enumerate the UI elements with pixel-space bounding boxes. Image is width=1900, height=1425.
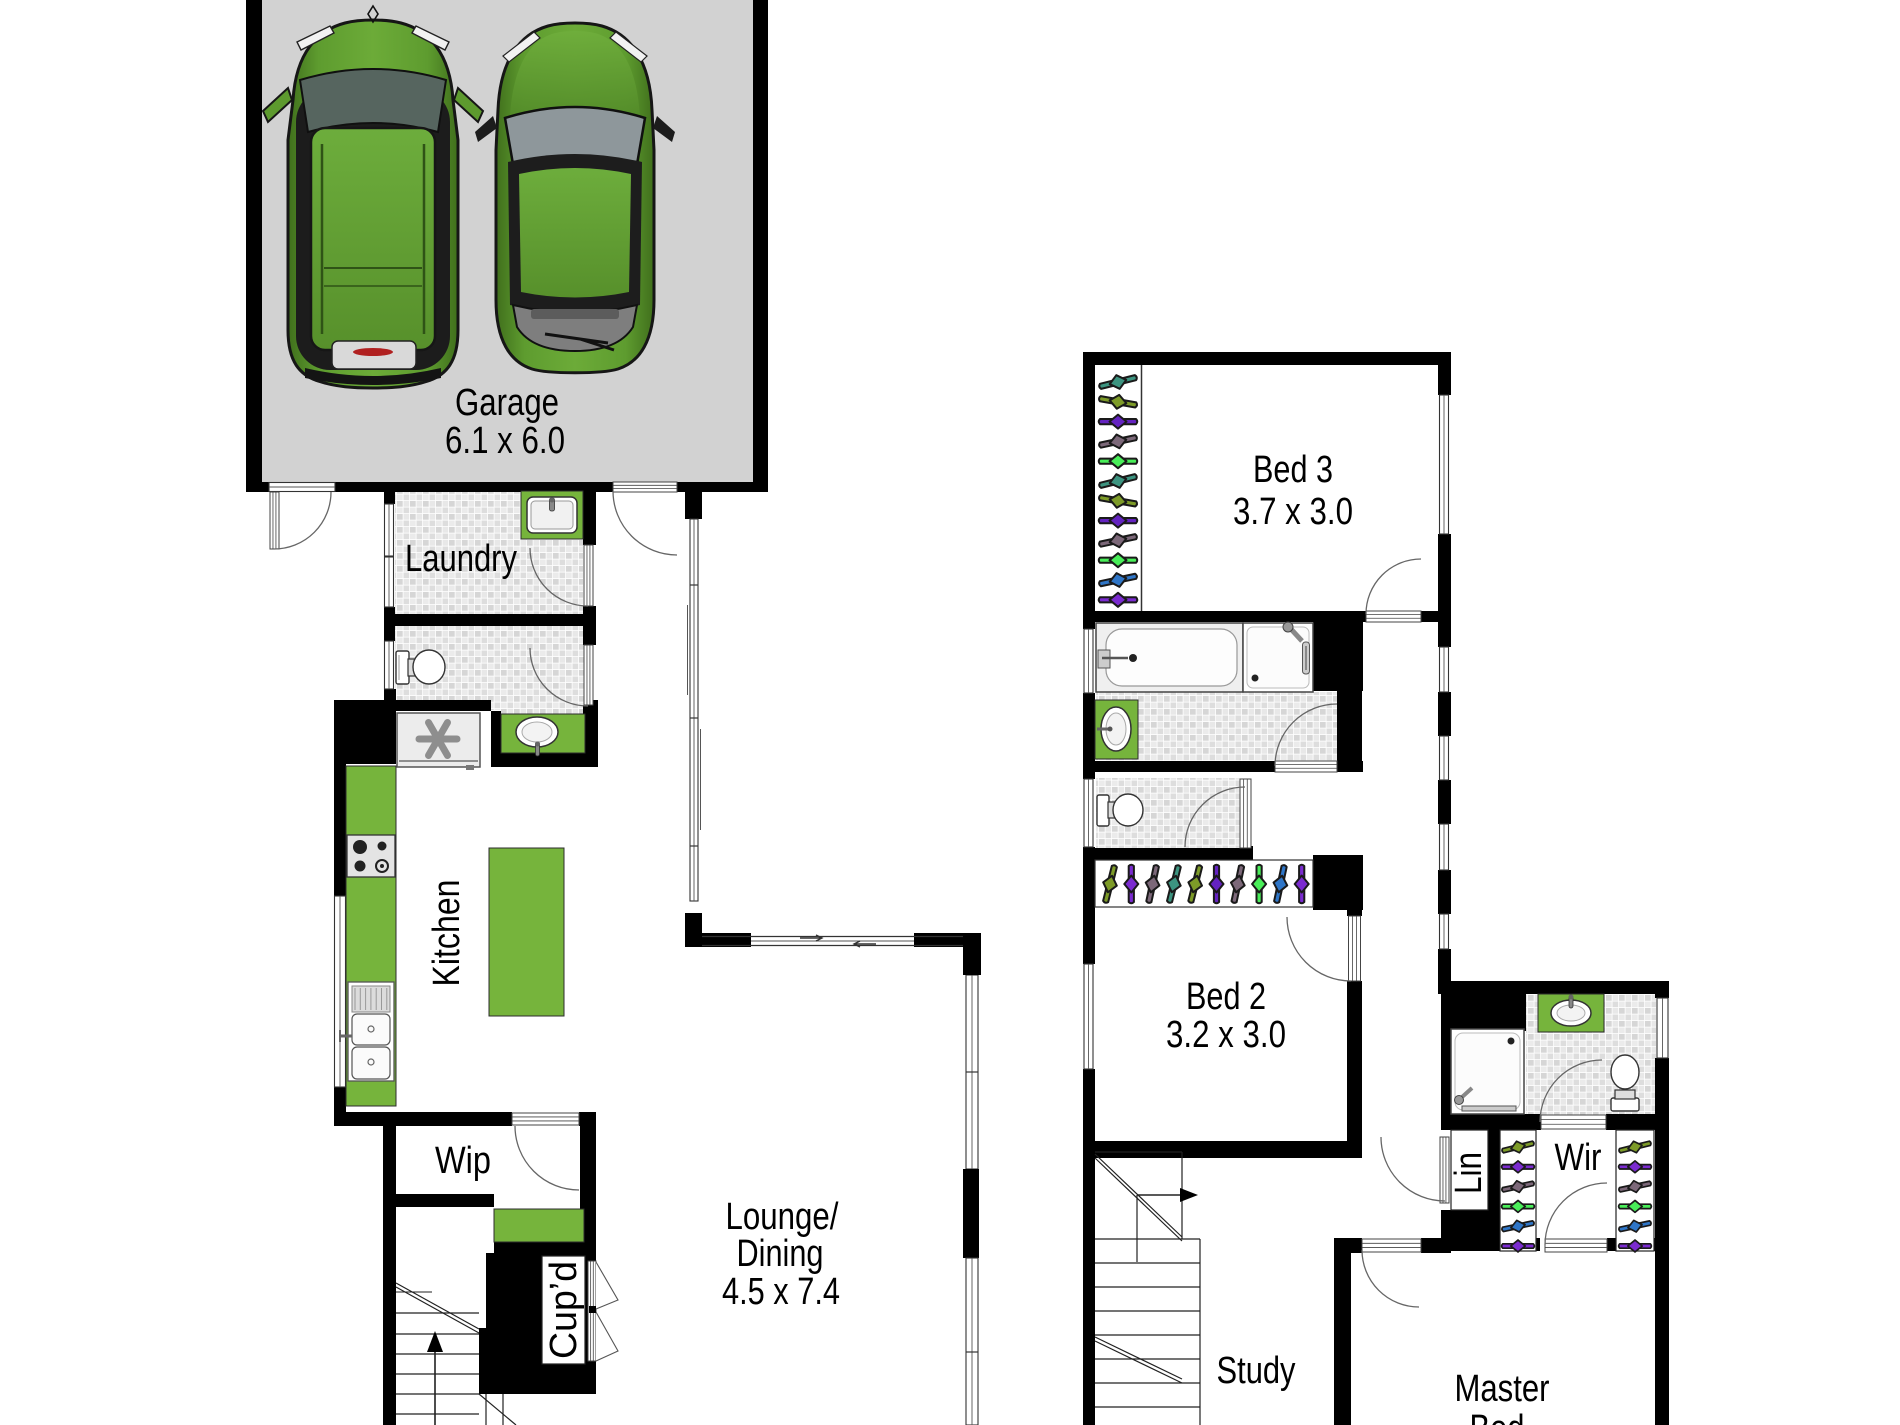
svg-text:Cup’d: Cup’d [543,1261,585,1359]
svg-text:Lounge/: Lounge/ [726,1196,839,1238]
svg-text:Study: Study [1217,1350,1296,1392]
svg-text:4.5 x 7.4: 4.5 x 7.4 [722,1271,840,1313]
svg-text:Bed 2: Bed 2 [1186,976,1266,1018]
svg-text:Wip: Wip [435,1140,491,1182]
svg-text:Master: Master [1455,1368,1550,1410]
svg-text:Bed 3: Bed 3 [1253,449,1333,491]
svg-text:Garage: Garage [455,382,559,424]
svg-text:Laundry: Laundry [405,538,517,580]
svg-text:Lin: Lin [1448,1152,1490,1194]
svg-text:Bed: Bed [1470,1408,1525,1425]
svg-text:Wir: Wir [1555,1137,1602,1179]
svg-text:3.7 x 3.0: 3.7 x 3.0 [1233,491,1353,533]
svg-text:Kitchen: Kitchen [426,880,468,987]
svg-text:6.1 x 6.0: 6.1 x 6.0 [445,420,565,462]
svg-text:3.2 x 3.0: 3.2 x 3.0 [1166,1014,1286,1056]
svg-text:Dining: Dining [737,1233,824,1275]
